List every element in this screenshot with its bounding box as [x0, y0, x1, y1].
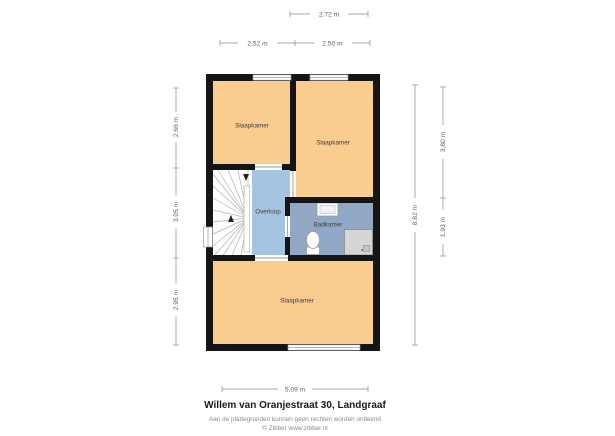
page-title: Willem van Oranjestraat 30, Landgraaf: [204, 400, 386, 411]
window-top-right: [310, 75, 348, 80]
dimension-top-left: 2.52 m: [220, 40, 295, 47]
shower-icon: [345, 230, 373, 256]
svg-text:3.80 m: 3.80 m: [440, 131, 447, 152]
svg-text:2.66 m: 2.66 m: [173, 116, 180, 137]
disclaimer-text: Aan de plattegronden kunnen geen rechten…: [209, 416, 381, 423]
toilet-icon: [307, 232, 320, 255]
window-top-left: [253, 75, 291, 80]
wall-below-bedroom-top-left: [213, 164, 296, 170]
room-label-bathroom: Badkamer: [314, 222, 343, 229]
stair-rail: [244, 186, 250, 252]
svg-text:1.93 m: 1.93 m: [440, 216, 447, 237]
svg-text:2.50 m: 2.50 m: [322, 40, 343, 47]
door-opening-bedroom-top-left: [255, 164, 282, 170]
dimension-top-right: 2.50 m: [295, 40, 370, 47]
floorplan-page: Slaapkamer Slaapkamer Overloop Badkamer …: [0, 0, 615, 436]
dimension-right-bottom: 1.93 m: [440, 198, 447, 256]
room-label-bedroom-top-left: Slaapkamer: [235, 123, 269, 130]
copyright-text: © Zibber www.zibber.nl: [262, 424, 327, 432]
dimension-left-bottom: 2.95 m: [173, 258, 180, 345]
svg-text:2.95 m: 2.95 m: [173, 289, 180, 310]
door-opening-bathroom: [285, 216, 290, 237]
floorplan-canvas: Slaapkamer Slaapkamer Overloop Badkamer …: [0, 0, 615, 436]
wall-above-bathroom: [285, 197, 373, 203]
wall-bedroom-divider: [290, 81, 296, 170]
door-opening-bedroom-top-right: [290, 171, 296, 197]
dimension-bottom-width: 5.09 m: [222, 386, 368, 393]
svg-text:2.72 m: 2.72 m: [319, 11, 340, 18]
room-label-bedroom-top-right: Slaapkamer: [316, 140, 350, 147]
wall-right: [373, 74, 380, 351]
room-label-bedroom-bottom: Slaapkamer: [280, 298, 314, 305]
wall-left: [206, 74, 213, 351]
svg-text:5.09 m: 5.09 m: [285, 386, 306, 393]
sink-icon: [317, 203, 338, 216]
dimension-left-middle: 3.05 m: [173, 168, 180, 258]
svg-text:2.52 m: 2.52 m: [247, 40, 268, 47]
wall-above-bedroom-bottom: [213, 255, 373, 261]
wall-top: [206, 74, 380, 81]
door-opening-bedroom-bottom: [255, 255, 288, 261]
dimension-top-total: 2.72 m: [290, 11, 368, 18]
window-left: [204, 227, 213, 247]
window-bottom: [288, 345, 360, 350]
dimension-right-total: 8.82 m: [412, 85, 419, 345]
dimension-left-top: 2.66 m: [173, 88, 180, 168]
svg-text:8.82 m: 8.82 m: [412, 204, 419, 225]
room-label-landing: Overloop: [255, 209, 281, 216]
svg-text:3.05 m: 3.05 m: [173, 201, 180, 222]
dimension-right-top: 3.80 m: [440, 87, 447, 198]
